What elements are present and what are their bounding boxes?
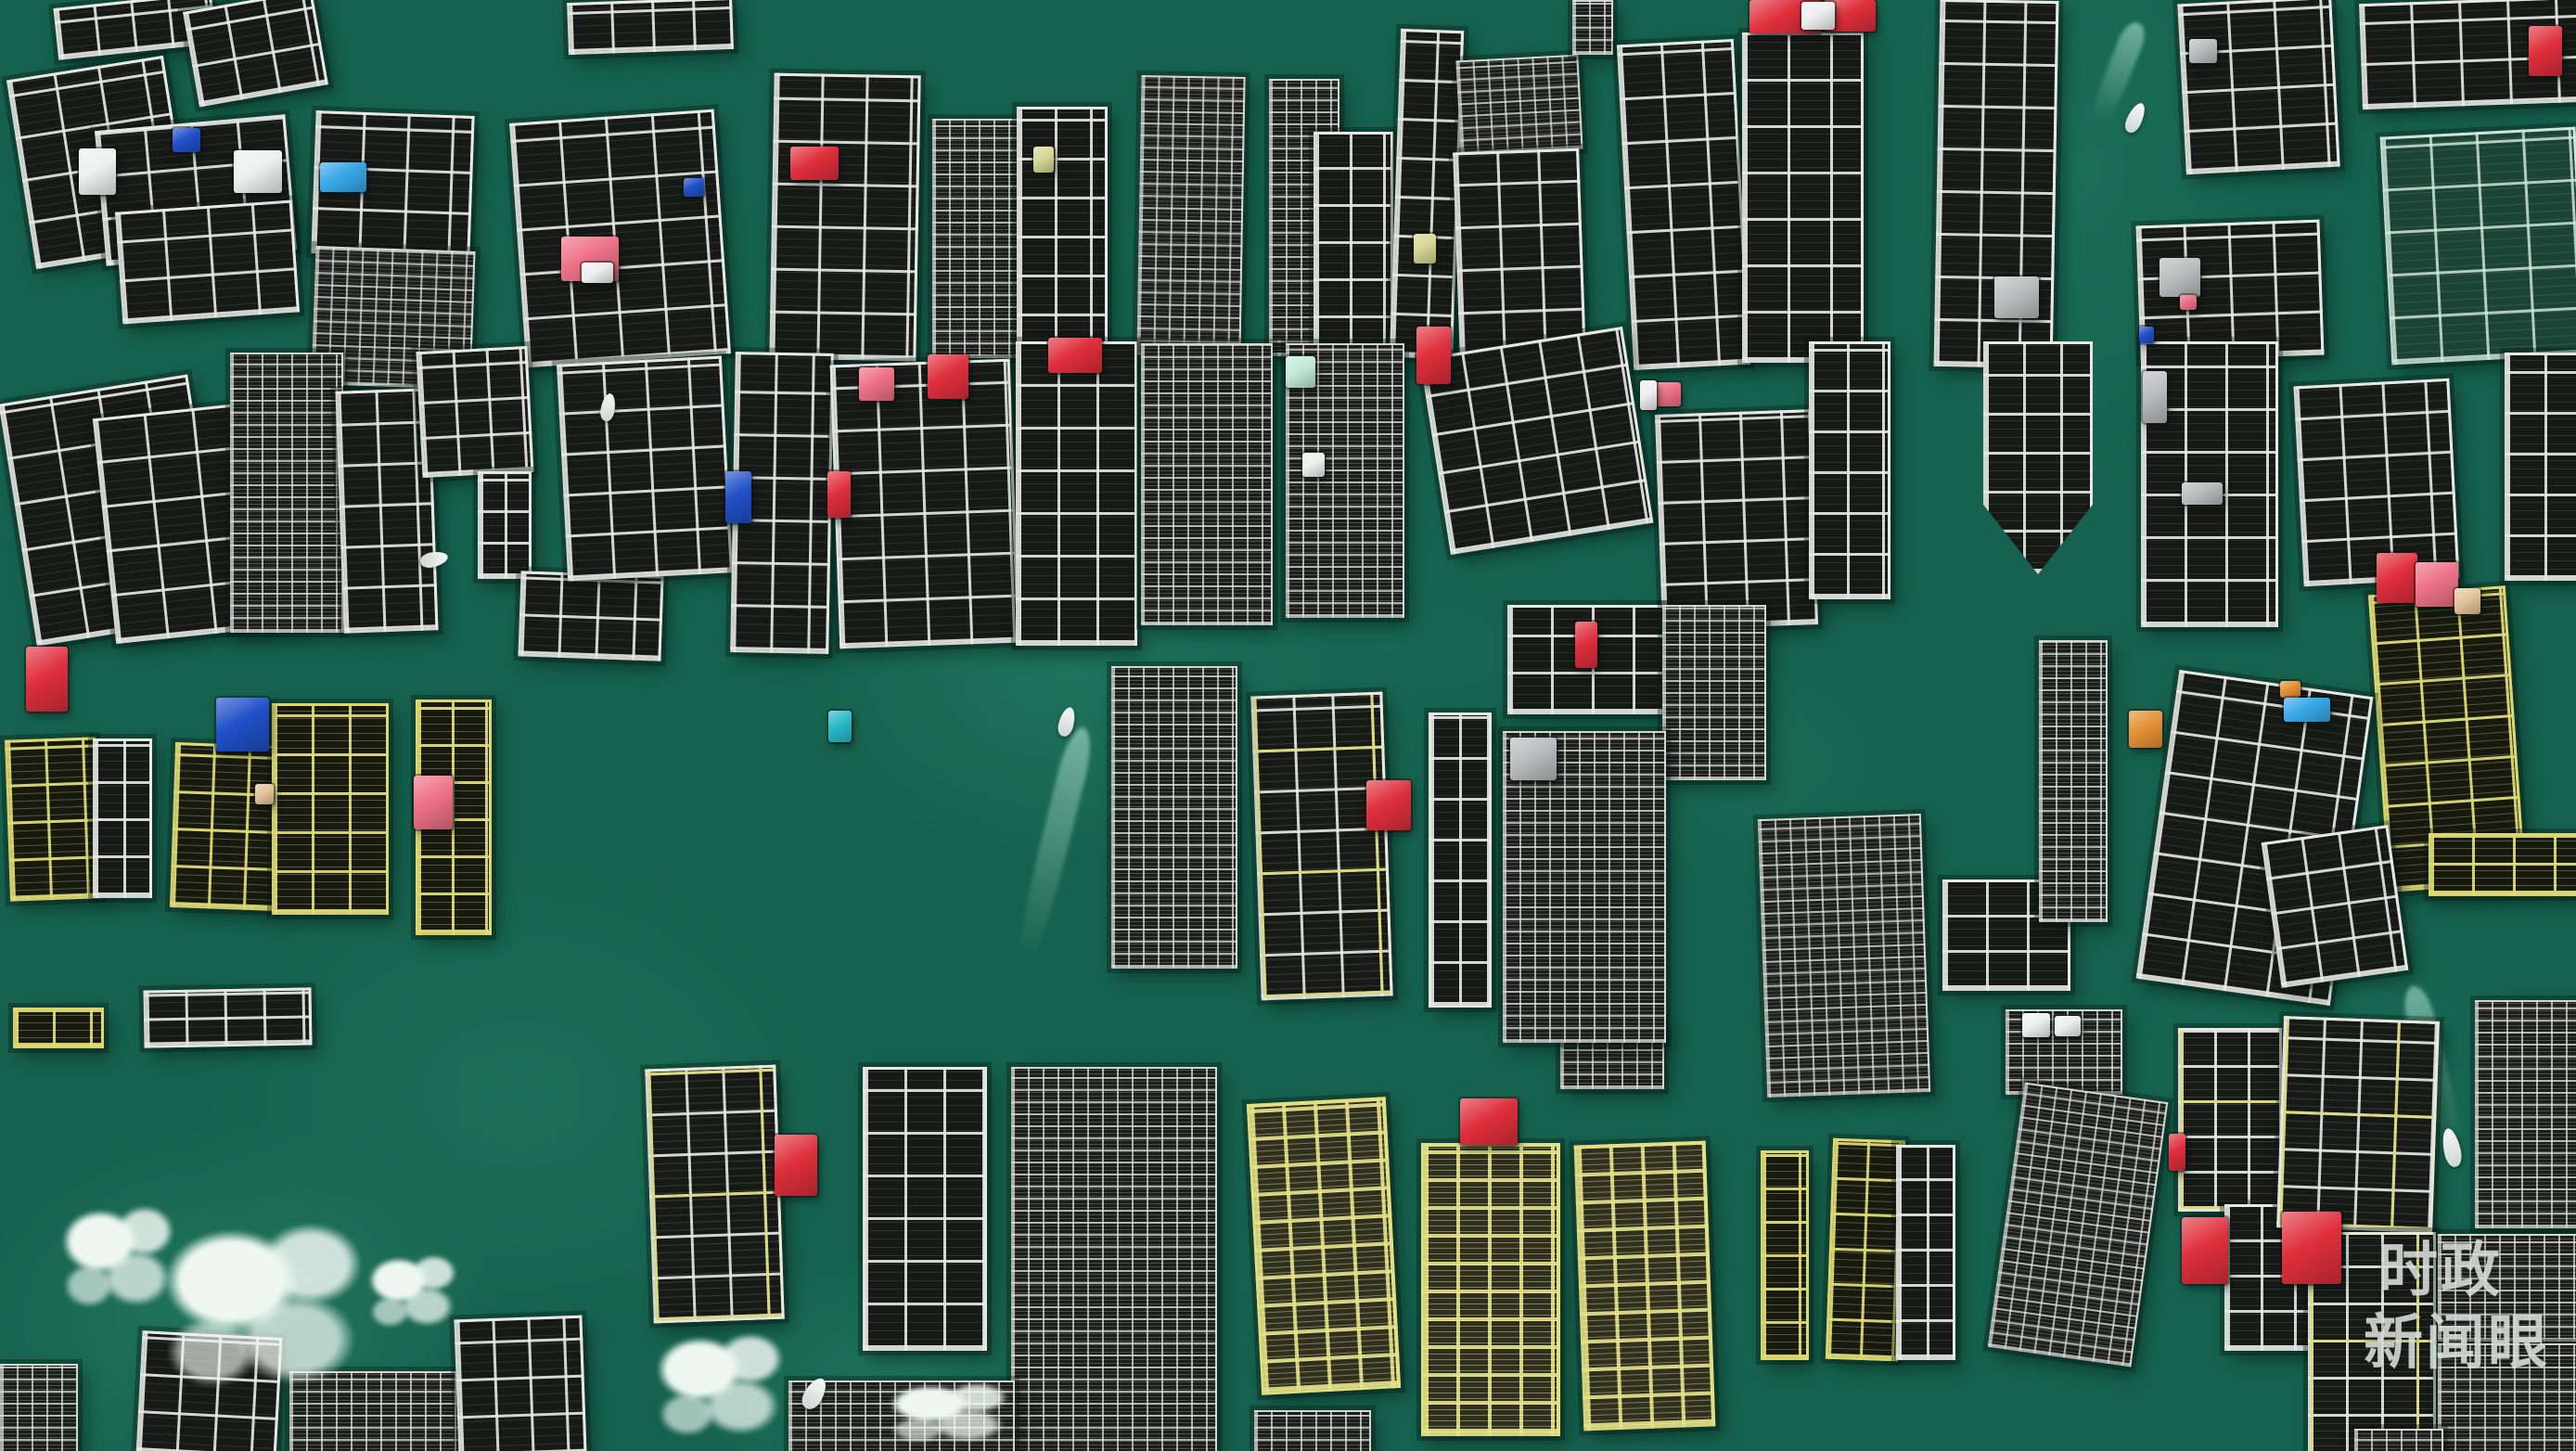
fish-cage-raft — [2380, 127, 2576, 366]
hut-roof — [2159, 258, 2200, 297]
hut-roof — [2284, 698, 2330, 722]
fish-cage-raft — [2354, 1429, 2443, 1451]
hut-roof — [2280, 681, 2300, 698]
hut-roof — [2189, 39, 2217, 63]
fish-cage-raft — [1453, 148, 1586, 361]
fish-cage-raft — [1655, 409, 1818, 630]
hut-roof — [775, 1135, 817, 1196]
fish-cage-raft — [1572, 0, 1613, 55]
hut-roof — [79, 148, 116, 195]
hut-roof — [255, 784, 274, 804]
fish-cage-raft — [1111, 666, 1237, 969]
hut-roof — [1655, 382, 1681, 406]
hut-roof — [2169, 1134, 2185, 1171]
foam-splash — [883, 1375, 1030, 1451]
fish-cage-raft — [863, 1067, 987, 1351]
hut-roof — [2129, 711, 2162, 748]
aerial-aquaculture-photo: 时政 新闻眼 — [0, 0, 2576, 1451]
hut-roof — [173, 128, 200, 152]
hut-roof — [2055, 1016, 2081, 1036]
hut-roof — [1575, 622, 1597, 668]
fish-cage-raft — [2505, 353, 2576, 581]
fish-cage-raft — [478, 471, 532, 579]
fish-cage-raft — [1896, 1145, 1955, 1360]
hut-roof — [216, 698, 269, 751]
fish-cage-raft — [1617, 39, 1750, 370]
fish-cage-raft — [1662, 605, 1766, 780]
hut-roof — [859, 367, 894, 401]
fish-cage-raft — [1758, 814, 1930, 1098]
fish-cage-raft — [769, 73, 920, 362]
fish-cage-raft — [417, 346, 534, 478]
hut-roof — [1414, 234, 1436, 263]
hut-roof — [1510, 738, 1557, 780]
fish-cage-raft — [557, 356, 733, 582]
hut-roof — [1994, 276, 2039, 318]
hut-roof — [725, 471, 751, 523]
fish-cage-raft — [1761, 1150, 1809, 1360]
fish-cage-raft — [143, 987, 312, 1047]
boat-wake — [1005, 725, 1096, 993]
fish-cage-raft — [830, 359, 1020, 649]
hut-roof — [1033, 147, 1054, 173]
fish-cage-raft — [230, 353, 343, 633]
fish-cage-raft — [2039, 640, 2108, 922]
foam-splash — [364, 1245, 473, 1338]
fish-cage-raft — [518, 571, 663, 661]
foam-splash — [649, 1319, 807, 1451]
fish-cage-raft — [645, 1065, 784, 1324]
fish-cage-raft — [183, 0, 328, 107]
hut-roof — [2139, 327, 2154, 343]
hut-roof — [1366, 780, 1411, 830]
hut-roof — [2180, 295, 2197, 310]
hut-roof — [828, 711, 852, 742]
hut-roof — [2182, 1217, 2228, 1284]
fish-cage-raft — [272, 703, 389, 915]
hut-roof — [26, 647, 68, 712]
hut-roof — [234, 150, 282, 193]
watermark-line1: 时政 — [2378, 1234, 2550, 1306]
fish-cage-raft — [1988, 1083, 2169, 1368]
fish-cage-raft — [1250, 692, 1392, 1001]
fish-cage-raft — [1136, 75, 1245, 357]
hut-roof — [2182, 482, 2223, 505]
boat — [2122, 100, 2149, 135]
fish-cage-raft — [1574, 1141, 1716, 1432]
fish-cage-raft — [2276, 1016, 2440, 1233]
fish-cage-raft — [1011, 1067, 1217, 1451]
fish-cage-raft — [93, 738, 152, 898]
fish-cage-raft — [1983, 341, 2093, 574]
fish-cage-raft — [170, 742, 283, 911]
fish-cage-raft — [2178, 1028, 2282, 1212]
fish-cage-raft — [13, 1008, 104, 1048]
hut-roof — [582, 263, 613, 283]
fish-cage-raft — [115, 199, 300, 324]
fish-cage-raft — [509, 109, 731, 368]
watermark-line2: 新闻眼 — [2364, 1306, 2550, 1379]
hut-roof — [1640, 380, 1657, 410]
hut-roof — [1416, 327, 1451, 384]
fish-cage-raft — [454, 1316, 586, 1451]
fish-cage-raft — [1420, 327, 1654, 555]
hut-roof — [2529, 26, 2562, 76]
boat — [2440, 1127, 2464, 1169]
fish-cage-raft — [1809, 341, 1890, 599]
fish-cage-raft — [567, 0, 734, 55]
hut-roof — [1286, 356, 1315, 388]
hut-roof — [1460, 1098, 1518, 1145]
hut-roof — [1801, 2, 1835, 30]
hut-roof — [2022, 1013, 2050, 1037]
hut-roof — [1048, 338, 1102, 373]
fish-cage-raft — [1429, 713, 1492, 1008]
hut-roof — [684, 178, 704, 197]
hut-roof — [790, 147, 839, 180]
hut-roof — [414, 776, 453, 829]
hut-roof — [320, 162, 366, 192]
fish-cage-raft — [1017, 107, 1108, 358]
fish-cage-raft — [1455, 55, 1583, 156]
hut-roof — [2377, 553, 2417, 603]
fish-cage-raft — [2177, 0, 2339, 174]
watermark: 时政 新闻眼 — [2364, 1234, 2550, 1379]
fish-cage-raft — [0, 1364, 78, 1451]
fish-cage-raft — [1016, 341, 1137, 646]
fish-cage-raft — [2262, 825, 2409, 988]
hut-roof — [2454, 588, 2480, 614]
fish-cage-raft — [1247, 1097, 1401, 1394]
fish-cage-raft — [1254, 1410, 1371, 1451]
hut-roof — [2416, 562, 2458, 607]
hut-roof — [2282, 1212, 2341, 1284]
foam-splash — [153, 1201, 399, 1410]
fish-cage-raft — [2475, 1000, 2576, 1228]
fish-cage-raft — [1141, 343, 1273, 625]
hut-roof — [2143, 371, 2167, 423]
fish-cage-raft — [1421, 1143, 1560, 1436]
fish-cage-raft — [5, 737, 101, 901]
fish-cage-raft — [1390, 29, 1464, 359]
fish-cage-raft — [2429, 833, 2576, 896]
hut-roof — [1302, 453, 1325, 477]
fish-cage-raft — [1742, 32, 1864, 363]
hut-roof — [928, 354, 968, 399]
fish-cage-raft — [1826, 1138, 1905, 1362]
fish-cage-raft — [1314, 132, 1393, 358]
hut-roof — [827, 471, 851, 518]
